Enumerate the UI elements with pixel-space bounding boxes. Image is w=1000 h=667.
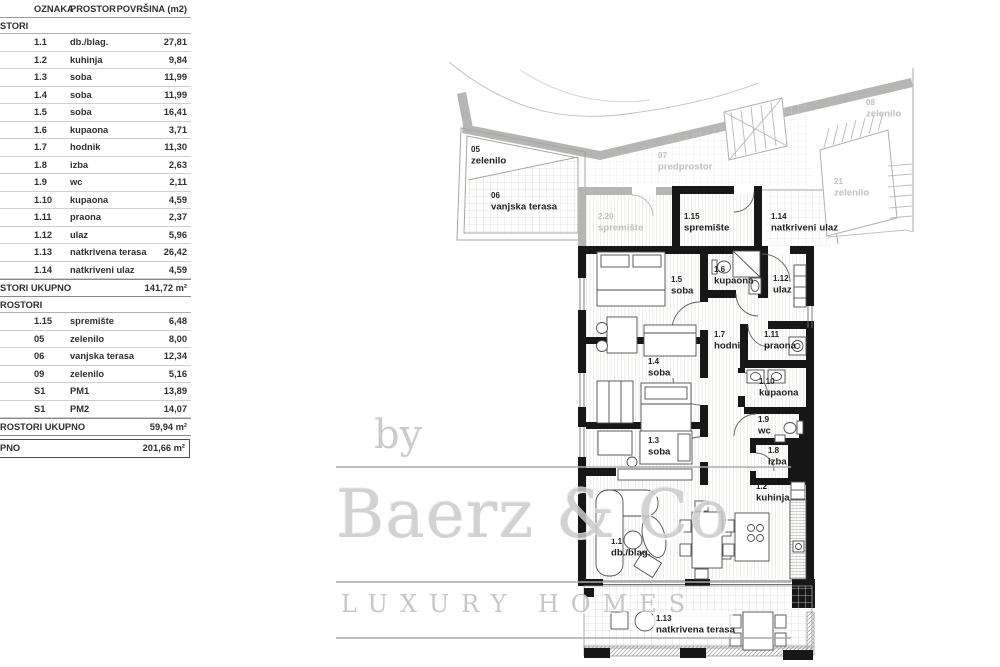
row-oznaka: 1.9: [34, 174, 47, 191]
table-row: 1.2kuhinja9,84: [0, 52, 191, 70]
room-name: soba: [671, 286, 694, 297]
row-oznaka: 1.2: [34, 52, 47, 69]
row-prostor: db./blag.: [70, 34, 108, 51]
room-name: soba: [648, 447, 671, 458]
grand-total-value: 201,66 m²: [143, 440, 185, 457]
room-name: kupaona: [759, 388, 799, 399]
room-id: 1.3: [648, 436, 660, 445]
table-row: 1.12ulaz5,96: [0, 227, 191, 245]
row-oznaka: 1.10: [34, 192, 52, 209]
row-oznaka: 1.5: [34, 104, 47, 121]
room-id: 1.1: [611, 537, 623, 546]
row-povrsina: 8,00: [169, 331, 187, 348]
table-row: 1.13natkrivena terasa26,42: [0, 244, 191, 262]
total-label: ROSTORI UKUPNO: [0, 419, 85, 435]
table-row: 1.4soba11,99: [0, 87, 191, 105]
row-prostor: zelenilo: [70, 331, 104, 348]
row-povrsina: 16,41: [164, 104, 187, 121]
room-name: zelenilo: [471, 156, 506, 167]
room-id: 1.9: [758, 415, 770, 424]
row-povrsina: 2,37: [169, 209, 187, 226]
row-povrsina: 12,34: [164, 348, 187, 365]
row-povrsina: 11,30: [164, 139, 187, 156]
room-id: 1.12: [773, 274, 789, 283]
room-name: soba: [648, 368, 671, 379]
room-id: 1.14: [771, 212, 787, 221]
row-povrsina: 13,89: [164, 383, 187, 400]
table-header: OZNAKA PROSTOR POVRŠINA (m2): [0, 3, 191, 18]
room-name: vanjska terasa: [491, 202, 558, 213]
row-prostor: wc: [70, 174, 82, 191]
room-id: 2.20: [598, 212, 614, 221]
section-label: ROSTORI: [0, 299, 42, 312]
table-row: 1.5soba16,41: [0, 104, 191, 122]
room-name: natkrivena terasa: [656, 625, 736, 636]
table-section-total: ROSTORI UKUPNO59,94 m²: [0, 418, 191, 436]
row-povrsina: 4,59: [169, 262, 187, 279]
grand-total-label: PNO: [0, 440, 20, 457]
table-row: S1PM214,07: [0, 401, 191, 419]
row-povrsina: 5,96: [169, 227, 187, 244]
room-name: zelenilo: [834, 188, 869, 199]
room-id: 1.5: [671, 275, 683, 284]
table-section-header: STORI: [0, 20, 191, 34]
table-row: 06vanjska terasa12,34: [0, 348, 191, 366]
table-row: 1.3soba11,99: [0, 69, 191, 87]
room-id: 1.8: [768, 446, 780, 455]
section-label: STORI: [0, 20, 28, 33]
row-prostor: kupaona: [70, 122, 108, 139]
table-row: 1.7hodnik11,30: [0, 139, 191, 157]
room-id: 1.10: [759, 377, 775, 386]
header-povrsina: POVRŠINA (m2): [117, 3, 187, 16]
row-prostor: soba: [70, 87, 92, 104]
table-row: 1.1db./blag.27,81: [0, 34, 191, 52]
table-row: 1.8izba2,63: [0, 157, 191, 175]
room-name: hodnik: [714, 341, 746, 352]
row-oznaka: 1.12: [34, 227, 52, 244]
row-oznaka: S1: [34, 401, 45, 418]
row-povrsina: 3,71: [169, 122, 187, 139]
room-name: kuhinja: [756, 493, 790, 504]
row-oznaka: S1: [34, 383, 45, 400]
table-row: 1.15spremište6,48: [0, 313, 191, 331]
table-row: 1.6kupaona3,71: [0, 122, 191, 140]
room-name-secondary: ulaz: [819, 223, 838, 234]
covered-terrace: [584, 586, 814, 660]
row-prostor: praona: [70, 209, 101, 226]
row-povrsina: 11,99: [164, 87, 187, 104]
row-prostor: ulaz: [70, 227, 88, 244]
table-section-header: ROSTORI: [0, 299, 191, 313]
row-oznaka: 1.3: [34, 69, 47, 86]
row-oznaka: 1.6: [34, 122, 47, 139]
room-name: spremište: [684, 223, 729, 234]
table-section-total: STORI UKUPNO141,72 m²: [0, 279, 191, 297]
room-label-05: 05zelenilo: [471, 145, 506, 167]
room-name: zelenilo: [866, 109, 901, 120]
row-prostor: hodnik: [70, 139, 100, 156]
row-povrsina: 6,48: [169, 313, 187, 330]
row-oznaka: 1.14: [34, 262, 52, 279]
row-prostor: vanjska terasa: [70, 348, 134, 365]
row-prostor: natkriveni ulaz: [70, 262, 135, 279]
room-id: 08: [866, 98, 875, 107]
total-label: STORI UKUPNO: [0, 280, 71, 296]
row-oznaka: 1.1: [34, 34, 47, 51]
table-row: 1.10kupaona4,59: [0, 192, 191, 210]
row-prostor: soba: [70, 104, 92, 121]
row-prostor: kupaona: [70, 192, 108, 209]
row-prostor: zelenilo: [70, 366, 104, 383]
total-value: 59,94 m²: [150, 419, 187, 435]
room-name: natkriveni: [771, 223, 816, 234]
table-row: 1.14natkriveni ulaz4,59: [0, 262, 191, 280]
room-id: 05: [471, 145, 480, 154]
row-oznaka: 1.11: [34, 209, 52, 226]
row-oznaka: 1.13: [34, 244, 52, 261]
room-name: izba: [768, 457, 787, 468]
row-prostor: natkrivena terasa: [70, 244, 147, 261]
room-id: 1.6: [714, 265, 726, 274]
row-povrsina: 2,63: [169, 157, 187, 174]
row-povrsina: 2,11: [169, 174, 187, 191]
row-prostor: PM2: [70, 401, 89, 418]
room-name: spremište: [598, 223, 643, 234]
row-prostor: izba: [70, 157, 88, 174]
room-name: kupaona: [714, 276, 754, 287]
header-oznaka: OZNAKA: [34, 3, 74, 16]
row-oznaka: 06: [34, 348, 44, 365]
room-name: predprostor: [658, 162, 713, 173]
row-oznaka: 05: [34, 331, 44, 348]
row-prostor: PM1: [70, 383, 89, 400]
row-oznaka: 1.4: [34, 87, 47, 104]
table-row: 05zelenilo8,00: [0, 331, 191, 349]
floor-plan-sheet: { "table": { "headers": { "oznaka": "OZN…: [0, 0, 1000, 667]
header-prostor: PROSTOR: [70, 3, 116, 16]
row-oznaka: 1.15: [34, 313, 52, 330]
table-row: 1.11praona2,37: [0, 209, 191, 227]
row-povrsina: 26,42: [164, 244, 187, 261]
room-id: 1.2: [756, 482, 768, 491]
room-id: 1.11: [764, 330, 780, 339]
room-id: 1.4: [648, 357, 660, 366]
room-name: db./blag.: [611, 548, 650, 559]
grand-total-row: PNO 201,66 m²: [0, 439, 190, 458]
row-povrsina: 11,99: [164, 69, 187, 86]
room-name: praona: [764, 341, 797, 352]
areas-table: OZNAKA PROSTOR POVRŠINA (m2) STORI1.1db.…: [0, 3, 191, 458]
table-row: 1.9wc2,11: [0, 174, 191, 192]
row-povrsina: 27,81: [164, 34, 187, 51]
row-povrsina: 5,16: [169, 366, 187, 383]
room-id: 06: [491, 191, 500, 200]
row-oznaka: 1.8: [34, 157, 47, 174]
room-name: ulaz: [773, 285, 792, 296]
row-povrsina: 14,07: [164, 401, 187, 418]
table-row: S1PM113,89: [0, 383, 191, 401]
row-prostor: spremište: [70, 313, 114, 330]
row-prostor: kuhinja: [70, 52, 103, 69]
row-povrsina: 4,59: [169, 192, 187, 209]
table-row: 09zelenilo5,16: [0, 366, 191, 384]
row-oznaka: 09: [34, 366, 44, 383]
room-id: 21: [834, 177, 843, 186]
room-name: wc: [757, 426, 771, 437]
row-prostor: soba: [70, 69, 92, 86]
room-id: 1.15: [684, 212, 700, 221]
room-id: 1.13: [656, 614, 672, 623]
room-label-08: 08zelenilo: [866, 98, 901, 120]
room-id: 1.7: [714, 330, 726, 339]
row-povrsina: 9,84: [169, 52, 187, 69]
room-id: 07: [658, 151, 667, 160]
row-oznaka: 1.7: [34, 139, 47, 156]
total-value: 141,72 m²: [145, 280, 187, 296]
